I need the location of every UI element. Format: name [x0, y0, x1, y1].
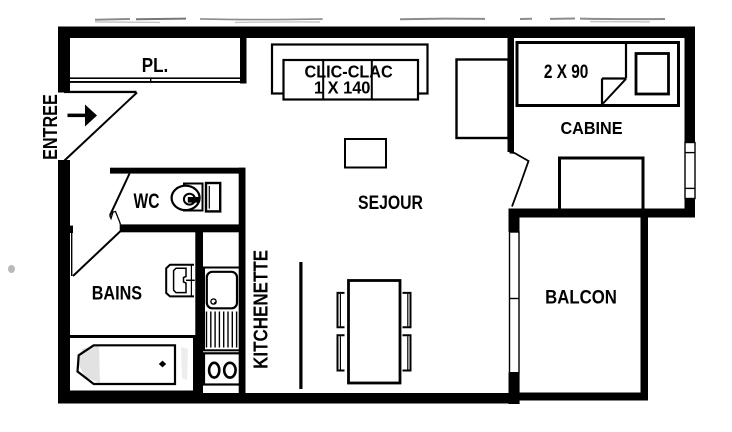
svg-text:2 X 90: 2 X 90 — [544, 60, 588, 82]
svg-text:BALCON: BALCON — [545, 286, 617, 307]
svg-text:1 X 140: 1 X 140 — [314, 77, 370, 98]
svg-text:WC: WC — [134, 189, 160, 213]
svg-text:CABINE: CABINE — [560, 118, 622, 138]
svg-text:BAINS: BAINS — [92, 282, 142, 304]
svg-text:PL.: PL. — [142, 54, 168, 77]
svg-text:KITCHENETTE: KITCHENETTE — [249, 250, 272, 369]
svg-text:SEJOUR: SEJOUR — [358, 192, 423, 214]
svg-text:ENTREE: ENTREE — [38, 94, 61, 160]
